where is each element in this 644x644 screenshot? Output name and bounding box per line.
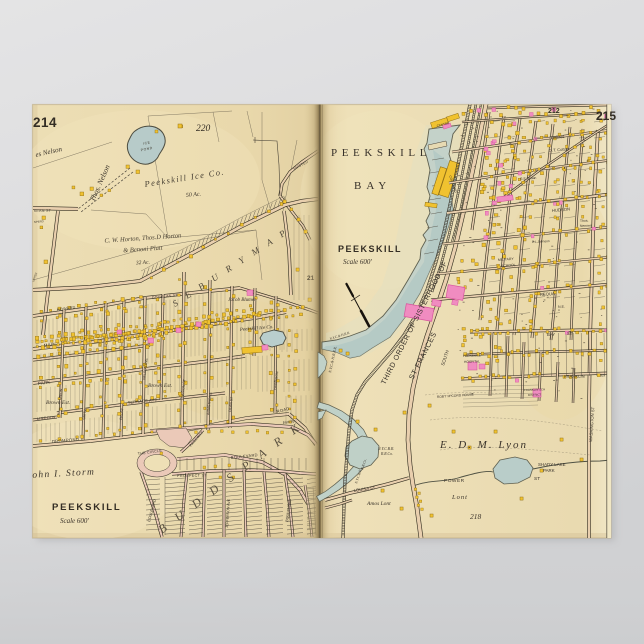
svg-text:ST: ST xyxy=(567,331,573,336)
svg-text:Brown Est.: Brown Est. xyxy=(46,400,70,406)
svg-text:N.Y.C.B.R.: N.Y.C.B.R. xyxy=(377,447,394,451)
svg-text:NTAN ST: NTAN ST xyxy=(34,209,52,213)
svg-text:E. D. M. Lyon: E. D. M. Lyon xyxy=(439,439,528,451)
svg-text:DISTRICT: DISTRICT xyxy=(528,393,542,397)
svg-text:ST: ST xyxy=(534,476,540,482)
svg-text:ST: ST xyxy=(600,373,606,378)
svg-text:R.R.Co.: R.R.Co. xyxy=(380,452,393,456)
svg-text:BAY: BAY xyxy=(547,332,555,337)
svg-text:SHADY LAKE: SHADY LAKE xyxy=(538,462,566,467)
svg-text:PARK: PARK xyxy=(543,468,555,473)
svg-text:REQUA: REQUA xyxy=(540,291,555,297)
svg-text:POWER: POWER xyxy=(444,478,465,484)
svg-text:Jacob Blumer: Jacob Blumer xyxy=(228,298,256,303)
svg-text:Nennen: Nennen xyxy=(580,224,592,228)
svg-text:N.E.: N.E. xyxy=(558,305,565,309)
svg-text:212: 212 xyxy=(548,108,560,115)
svg-text:NPERD: NPERD xyxy=(34,219,44,224)
svg-text:Scale 600′: Scale 600′ xyxy=(60,517,89,525)
svg-text:Thos.: Thos. xyxy=(580,219,589,223)
svg-text:HOSPITAL: HOSPITAL xyxy=(464,359,480,364)
svg-text:Lont: Lont xyxy=(451,494,468,501)
svg-text:PEEKSKILL: PEEKSKILL xyxy=(338,244,402,254)
svg-text:Scale 600′: Scale 600′ xyxy=(343,258,372,266)
svg-text:220: 220 xyxy=(196,124,211,134)
svg-text:PROSPECT ST: PROSPECT ST xyxy=(177,473,207,478)
svg-text:PEEKSKILL: PEEKSKILL xyxy=(52,502,122,513)
svg-text:FRANKLIN: FRANKLIN xyxy=(564,374,585,379)
svg-text:32 Ac.: 32 Ac. xyxy=(135,260,150,267)
svg-text:Amos Lont: Amos Lont xyxy=(366,501,391,507)
svg-text:214: 214 xyxy=(33,115,57,130)
svg-text:PEEKSKILL: PEEKSKILL xyxy=(463,353,481,358)
svg-text:FRANKLIN SCH: FRANKLIN SCH xyxy=(524,387,545,392)
svg-text:PEEKSKILL: PEEKSKILL xyxy=(331,147,431,159)
svg-text:215: 215 xyxy=(596,109,616,123)
svg-text:BAY: BAY xyxy=(354,180,391,192)
svg-text:Brown Est.: Brown Est. xyxy=(148,383,172,389)
svg-text:218: 218 xyxy=(470,512,482,521)
